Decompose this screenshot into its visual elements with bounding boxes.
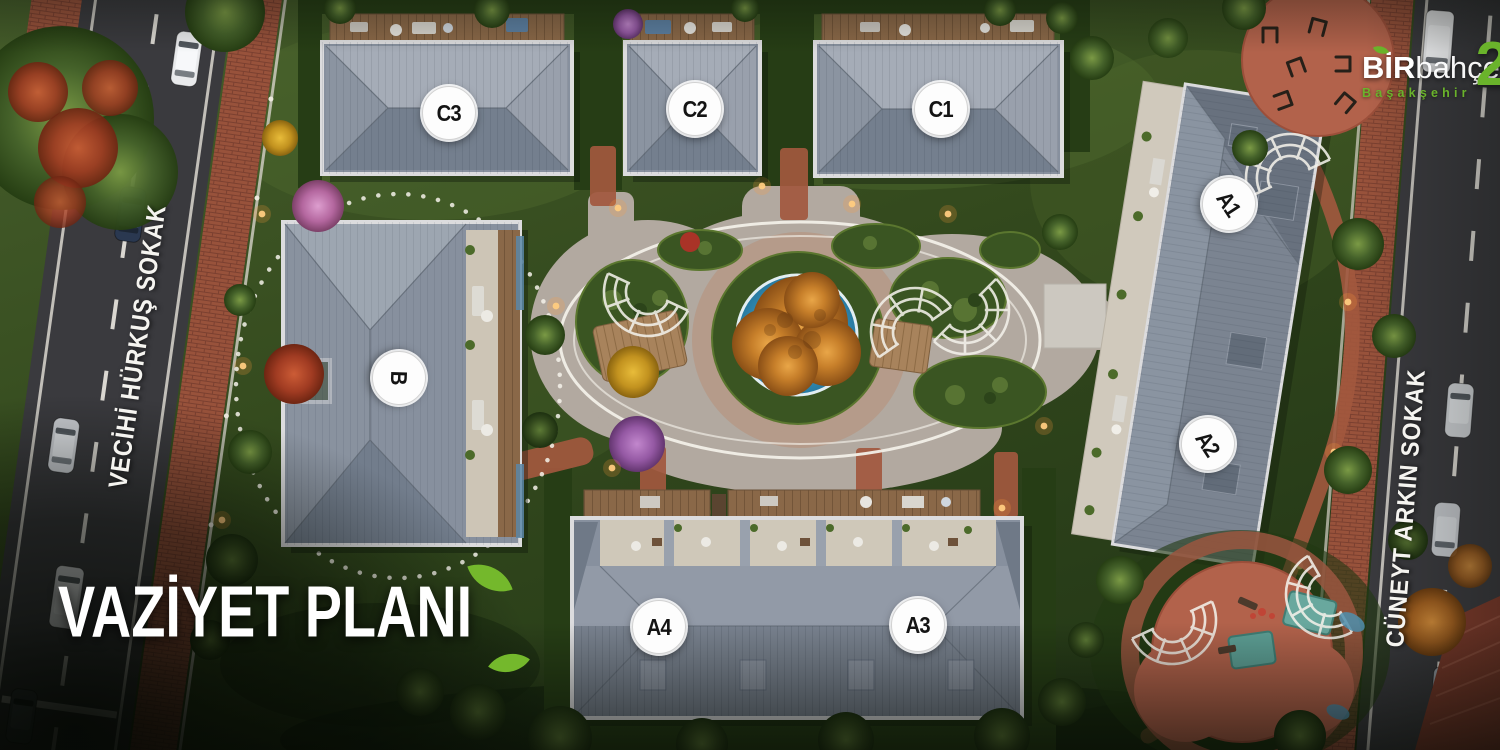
block-marker-a4[interactable]: A4 [632,600,686,654]
block-marker-a3[interactable]: A3 [891,598,945,652]
block-marker-label: A2 [1190,427,1226,462]
block-marker-label: C2 [683,96,707,123]
block-marker-c2[interactable]: C2 [668,82,722,136]
logo-subtitle: Başakşehir [1362,86,1494,100]
brand-logo: BİRbahçe 2 Başakşehir [1362,52,1494,100]
block-marker-label: A3 [906,612,930,639]
block-marker-c3[interactable]: C3 [422,86,476,140]
block-marker-label: C3 [437,100,461,127]
logo-wordmark: BİRbahçe 2 [1362,52,1494,83]
block-marker-label: A1 [1211,187,1247,222]
block-marker-label: B [385,371,412,386]
block-marker-label: C1 [929,96,953,123]
site-plan: VECİHİ HÜRKUŞ SOKAK CÜNEYT ARKIN SOKAK C… [0,0,1500,750]
block-marker-label: A4 [647,614,671,641]
logo-number: 2 [1476,34,1500,96]
page-title: VAZİYET PLANI [58,576,472,648]
plan-title-block: VAZİYET PLANI [58,576,563,644]
logo-brand-prefix: BİR [1362,50,1415,85]
block-marker-c1[interactable]: C1 [914,82,968,136]
